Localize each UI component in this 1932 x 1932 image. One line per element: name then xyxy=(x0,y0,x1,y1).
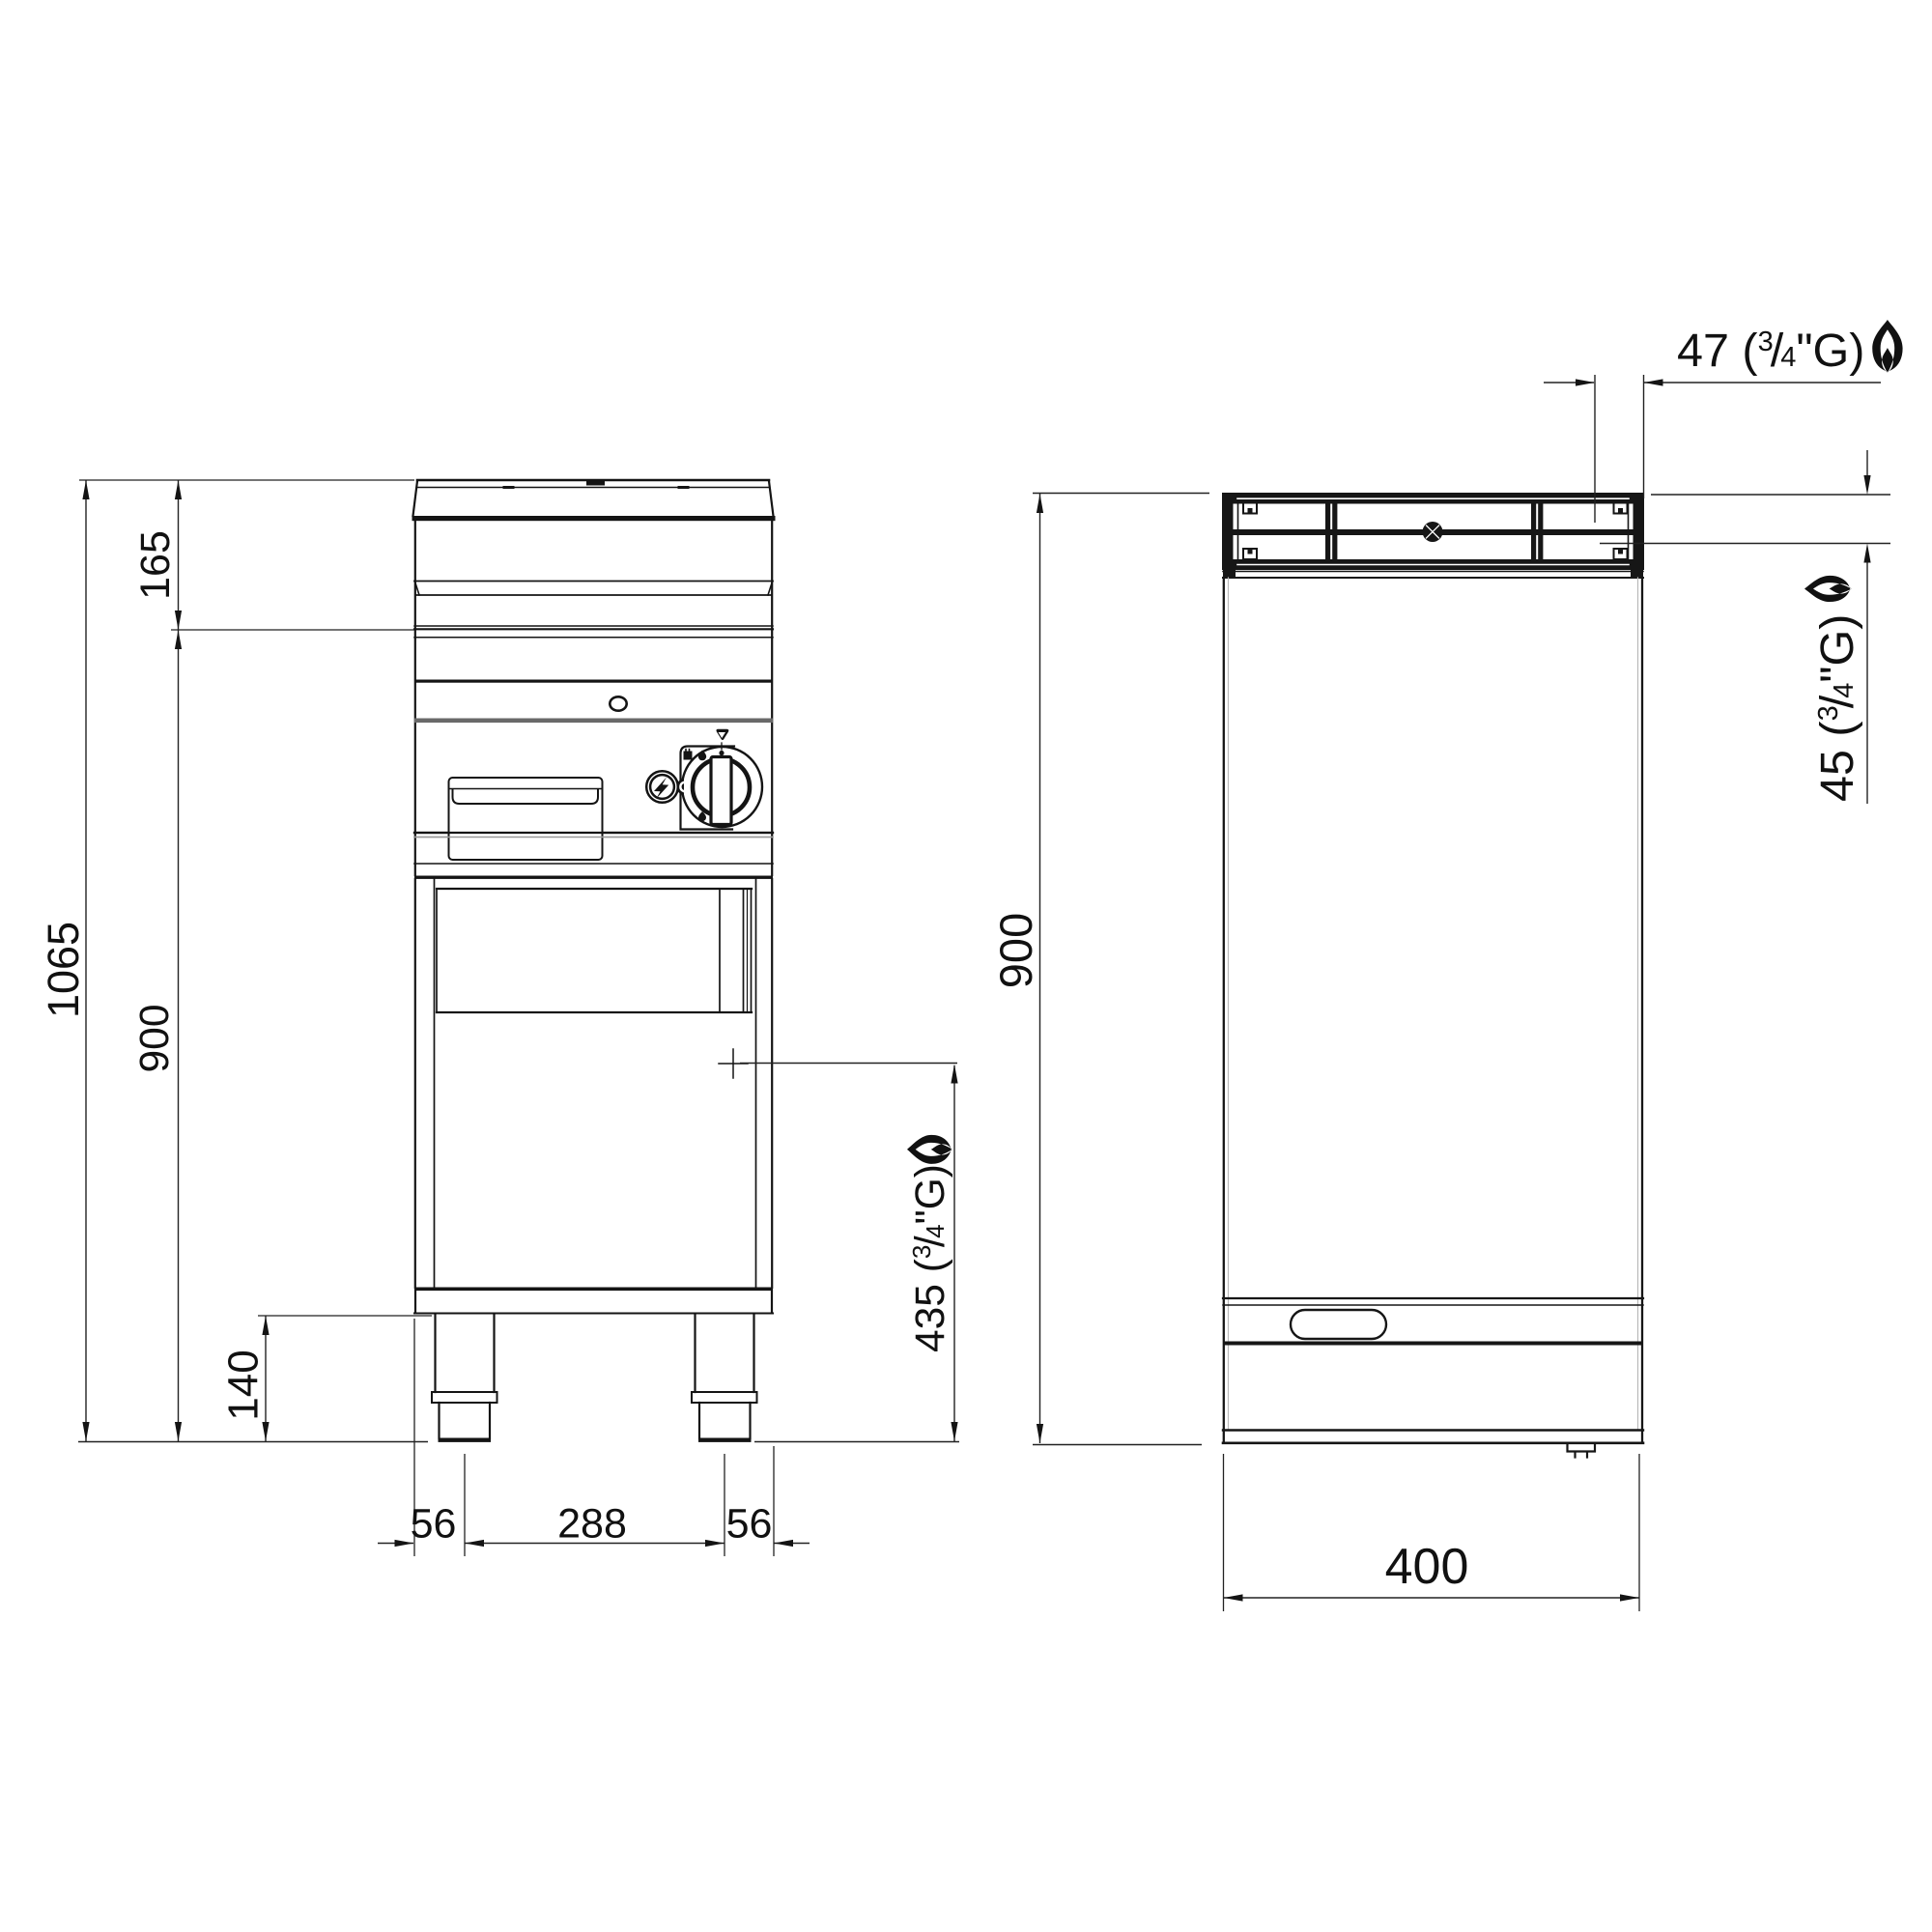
svg-text:900: 900 xyxy=(132,1005,178,1073)
svg-text:165: 165 xyxy=(132,530,179,600)
svg-text:45 (3/4"G): 45 (3/4"G) xyxy=(1811,614,1863,802)
svg-text:1065: 1065 xyxy=(39,922,88,1018)
svg-text:288: 288 xyxy=(557,1501,627,1548)
svg-text:140: 140 xyxy=(220,1350,268,1420)
svg-text:56: 56 xyxy=(411,1501,457,1548)
svg-text:47 (3/4"G): 47 (3/4"G) xyxy=(1677,325,1864,377)
svg-text:400: 400 xyxy=(1385,1539,1469,1595)
svg-text:900: 900 xyxy=(990,913,1041,988)
svg-text:56: 56 xyxy=(726,1501,773,1548)
